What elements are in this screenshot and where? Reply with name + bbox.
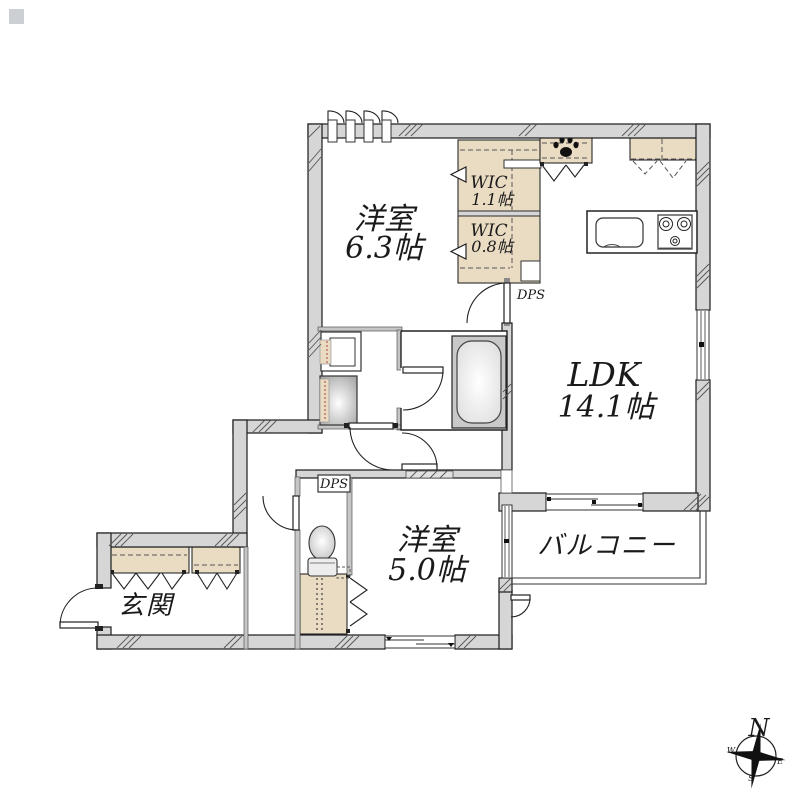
compass-north-label: N (748, 714, 771, 742)
toilet (308, 526, 350, 578)
bedroom50-door (402, 433, 437, 470)
balcony-side-door (511, 595, 530, 617)
dps-upper-label: DPS (516, 288, 545, 303)
ldk-size-label: 14.1帖 (558, 390, 659, 425)
balcony-sliding-door (546, 494, 643, 510)
entrance-label: 玄関 (118, 591, 175, 621)
bathtub (457, 341, 501, 423)
washroom-door (344, 423, 398, 470)
washing-machine (320, 332, 361, 371)
compass-south-label: S (748, 774, 754, 783)
balcony-label: バルコニー (537, 531, 676, 561)
ldk-east-window (697, 310, 709, 380)
floorplan-page: 洋室 6.3帖 WIC 1.1帖 WIC 0.8帖 DPS LDK 14.1帖 … (0, 0, 800, 800)
bedroom50-east-window (502, 505, 512, 578)
bedroom50-south-window (385, 636, 455, 648)
kitchen-counter (587, 211, 697, 253)
wic08-size-label: 0.8帖 (471, 237, 514, 256)
bedroom63-door (467, 283, 510, 323)
wash-basin (320, 376, 357, 425)
hall-opening (501, 470, 512, 493)
compass-east-label: E (776, 757, 783, 766)
kitchen-cabinet (630, 138, 697, 178)
ldk-name-label: LDK (566, 355, 642, 394)
shoe-cabinets (110, 547, 240, 589)
wic-hanger-pipe (504, 160, 541, 168)
toilet-door (263, 496, 299, 530)
threshold-band (406, 471, 453, 478)
bedroom50-closet (300, 574, 367, 634)
kitchen-sink (596, 218, 643, 247)
compass-west-label: W (727, 746, 736, 755)
bedroom63-size-label: 6.3帖 (345, 231, 427, 266)
bedroom50-size-label: 5.0帖 (388, 553, 470, 588)
floorplan-canvas: 洋室 6.3帖 WIC 1.1帖 WIC 0.8帖 DPS LDK 14.1帖 … (0, 0, 800, 800)
stove (658, 215, 692, 249)
bathroom (401, 331, 507, 430)
dps-upper-box (521, 261, 540, 281)
wic11-size-label: 1.1帖 (471, 190, 514, 209)
paw-closet (540, 137, 592, 181)
dps-lower-label: DPS (319, 477, 348, 492)
entrance-door (60, 584, 103, 631)
compass: N W E S (722, 714, 791, 793)
corner-mark (9, 9, 24, 24)
